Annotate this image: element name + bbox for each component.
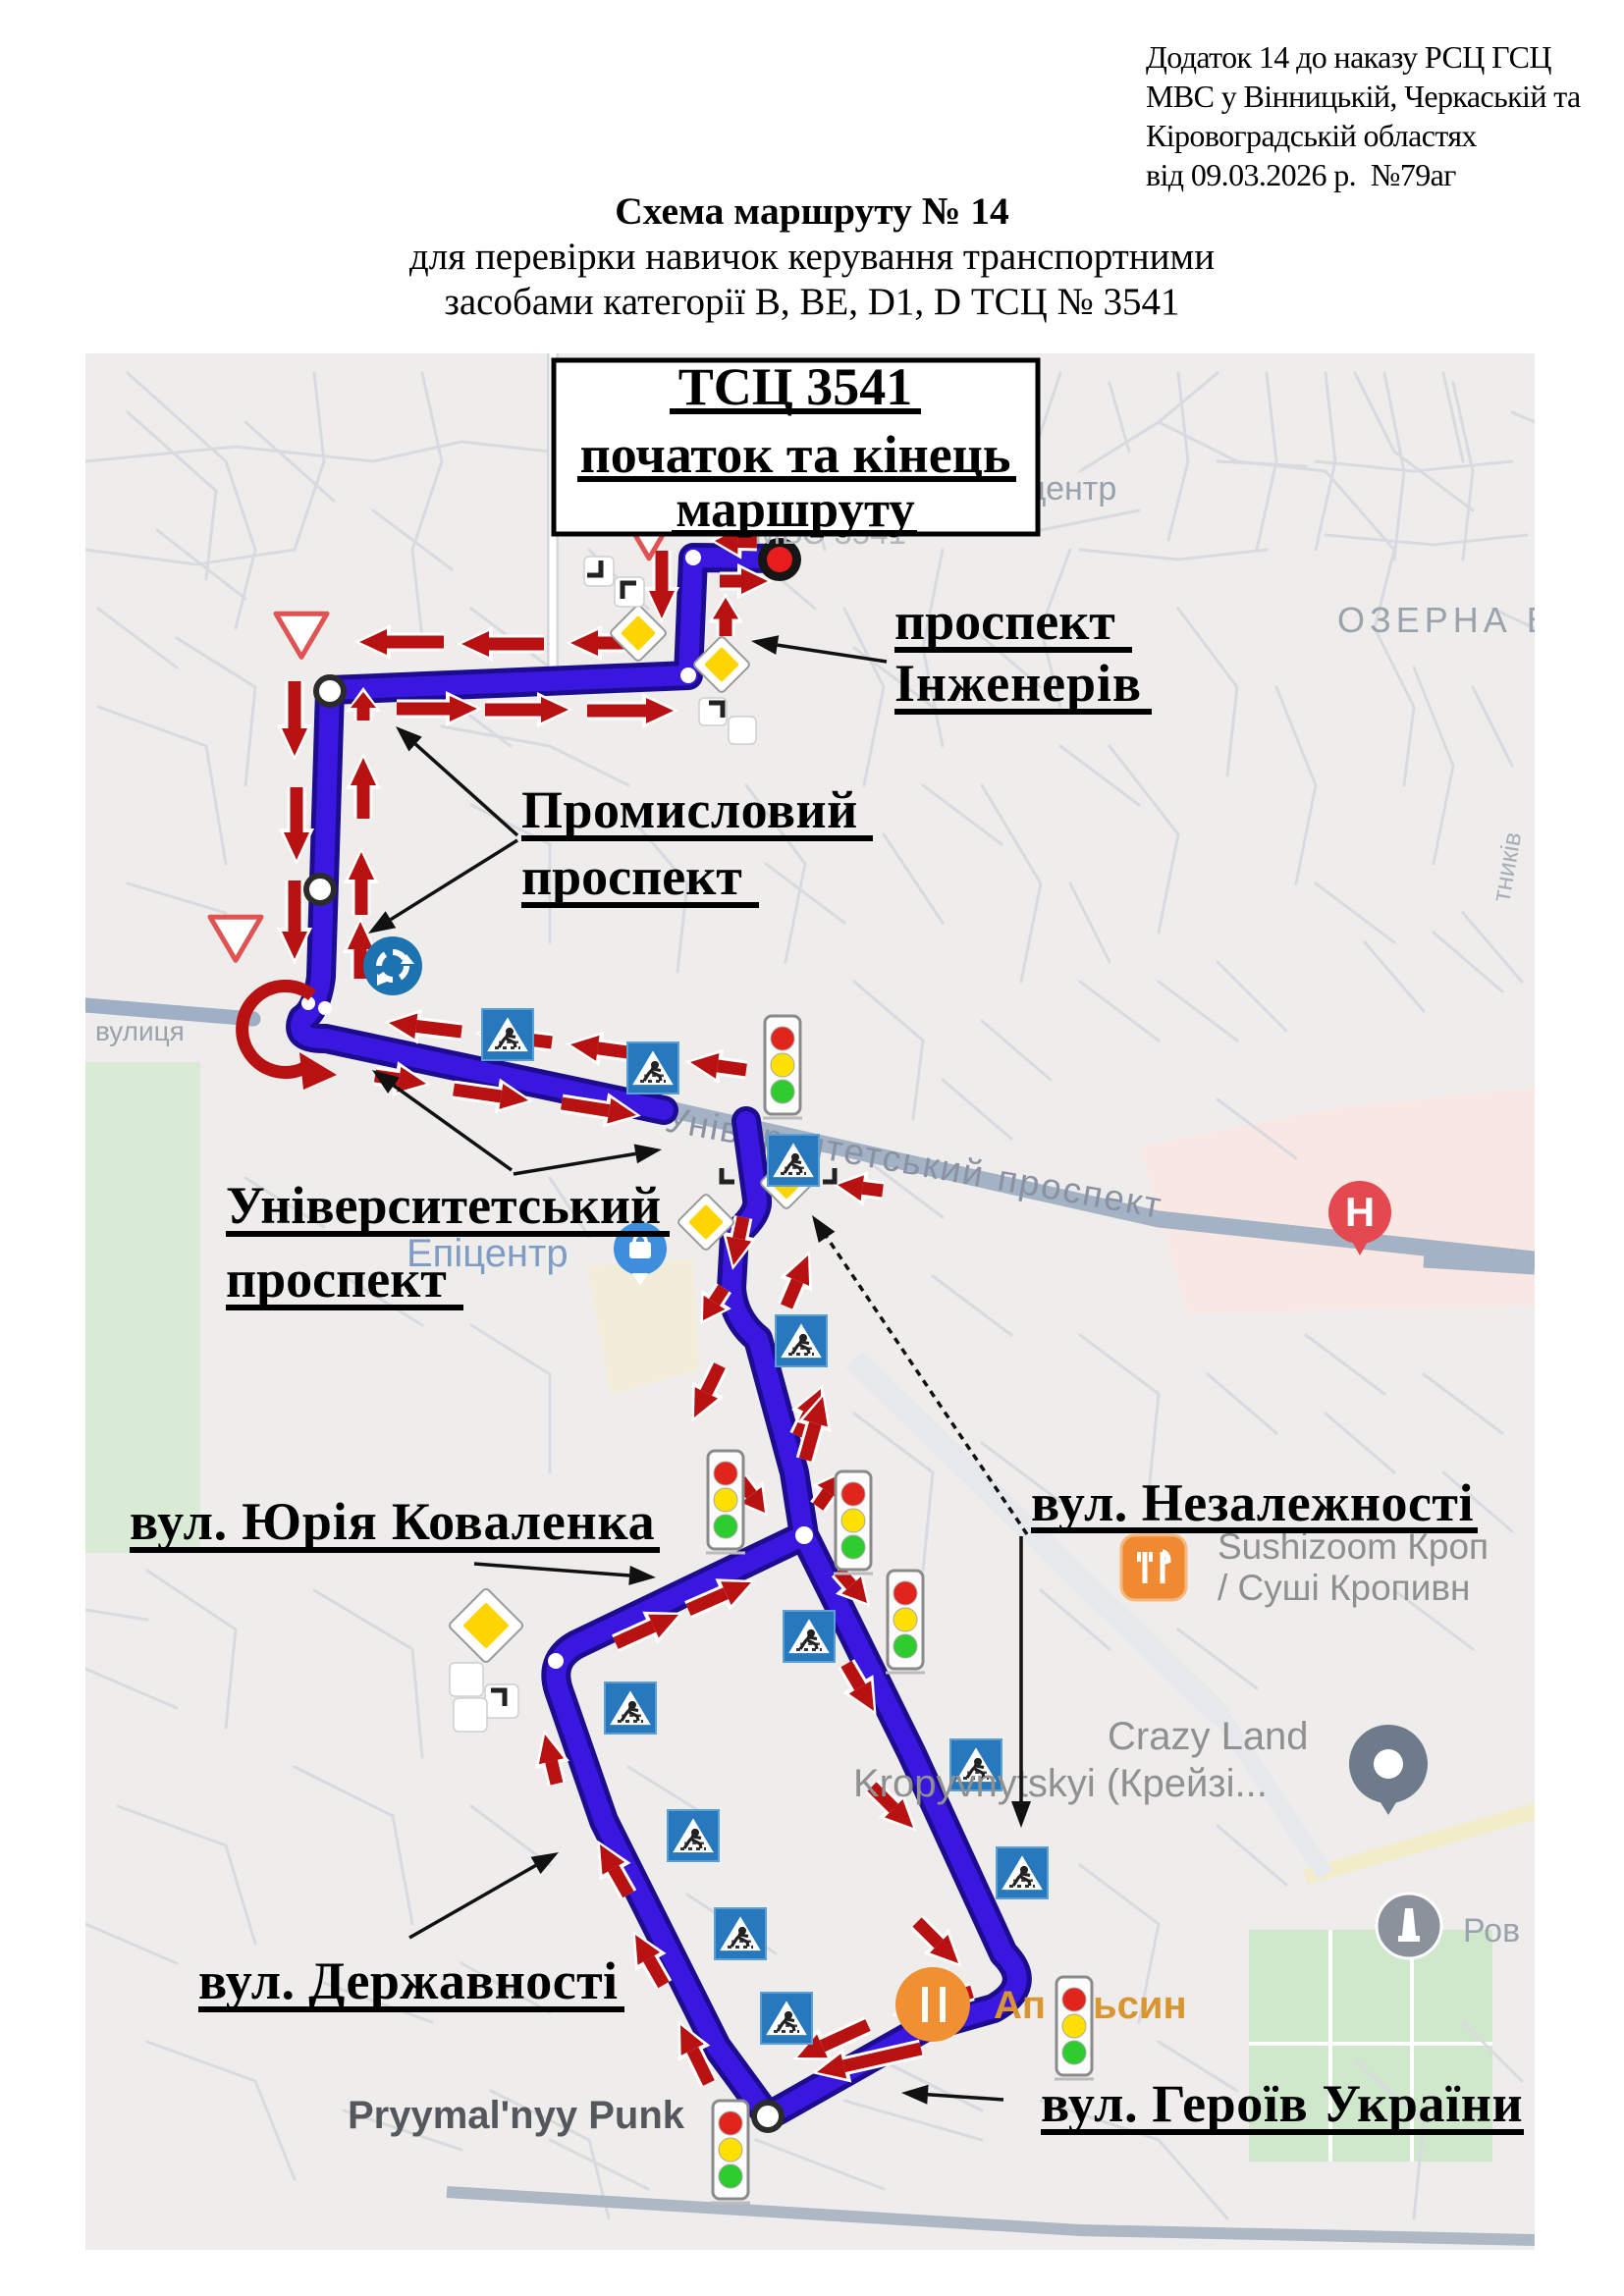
svg-text:Crazy Land: Crazy Land <box>1108 1715 1309 1758</box>
svg-text:вул. Державності: вул. Державності <box>198 1951 618 2010</box>
svg-text:Kropyvnytskyi (Крейзі...: Kropyvnytskyi (Крейзі... <box>853 1762 1268 1805</box>
svg-text:проспект: проспект <box>226 1250 447 1308</box>
svg-text:вулиця: вулиця <box>95 1016 185 1046</box>
svg-text:маршруту: маршруту <box>676 481 915 538</box>
svg-text:Інженерів: Інженерів <box>894 654 1142 713</box>
svg-text:Університетський: Університетський <box>226 1176 661 1235</box>
svg-text:початок та кінець: початок та кінець <box>580 425 1011 484</box>
svg-text:H: H <box>1345 1189 1375 1235</box>
svg-text:проспект: проспект <box>894 592 1115 651</box>
svg-text:вул. Героїв України: вул. Героїв України <box>1041 2074 1523 2133</box>
svg-text:ОЗЕРНА Б: ОЗЕРНА Б <box>1337 600 1535 640</box>
svg-text:Промисловий: Промисловий <box>521 780 858 839</box>
svg-text:/ Суші Кропивн: / Суші Кропивн <box>1218 1568 1470 1608</box>
svg-text:Ров: Ров <box>1463 1912 1520 1949</box>
svg-text:вул. Незалежності: вул. Незалежності <box>1031 1473 1474 1532</box>
svg-text:ТСЦ 3541: ТСЦ 3541 <box>678 357 913 416</box>
svg-text:центр: центр <box>1027 470 1116 507</box>
svg-text:проспект: проспект <box>521 847 742 906</box>
svg-text:вул. Юрія Коваленка: вул. Юрія Коваленка <box>130 1492 655 1551</box>
svg-text:Pryymal'nyy Punk: Pryymal'nyy Punk <box>348 2094 685 2137</box>
